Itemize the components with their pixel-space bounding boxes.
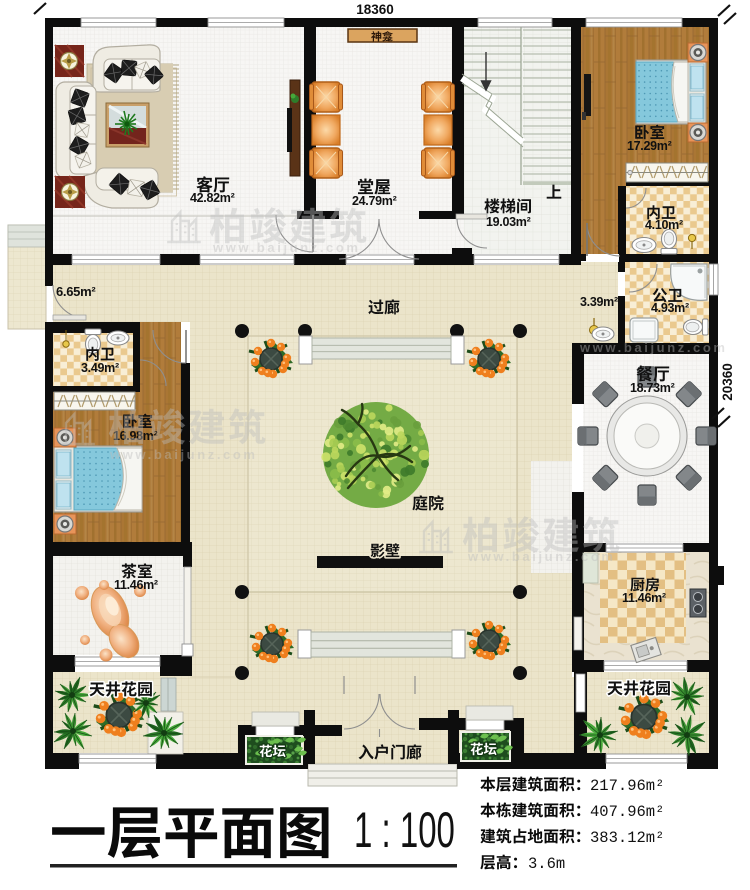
svg-text:11.46m²: 11.46m² [114, 578, 158, 592]
svg-text:18360: 18360 [356, 2, 394, 17]
svg-text:18.73m²: 18.73m² [630, 381, 675, 395]
svg-text:383.12m²: 383.12m² [590, 829, 664, 847]
svg-text:19.03m²: 19.03m² [486, 215, 531, 229]
svg-text:4.93m²: 4.93m² [651, 301, 689, 315]
svg-text:217.96m²: 217.96m² [590, 777, 664, 795]
svg-text:11.46m²: 11.46m² [622, 591, 666, 605]
svg-text:www.baijunz.com: www.baijunz.com [467, 549, 616, 564]
svg-text:3.6m: 3.6m [528, 855, 565, 873]
svg-text:20360: 20360 [720, 363, 735, 401]
svg-text:6.65m²: 6.65m² [56, 284, 96, 299]
svg-text:24.79m²: 24.79m² [352, 194, 397, 208]
svg-text:17.29m²: 17.29m² [627, 139, 672, 153]
svg-text:www.baijunz.com: www.baijunz.com [109, 447, 258, 462]
svg-text:3.49m²: 3.49m² [81, 361, 119, 375]
svg-text:1 : 100: 1 : 100 [354, 802, 455, 857]
svg-text:3.39m²: 3.39m² [580, 295, 618, 309]
svg-text:42.82m²: 42.82m² [190, 191, 235, 205]
svg-text:www.baijunz.com: www.baijunz.com [212, 240, 361, 255]
svg-text:www.baijunz.com: www.baijunz.com [579, 340, 728, 355]
svg-text:407.96m²: 407.96m² [590, 803, 664, 821]
svg-text:4.10m²: 4.10m² [645, 218, 683, 232]
